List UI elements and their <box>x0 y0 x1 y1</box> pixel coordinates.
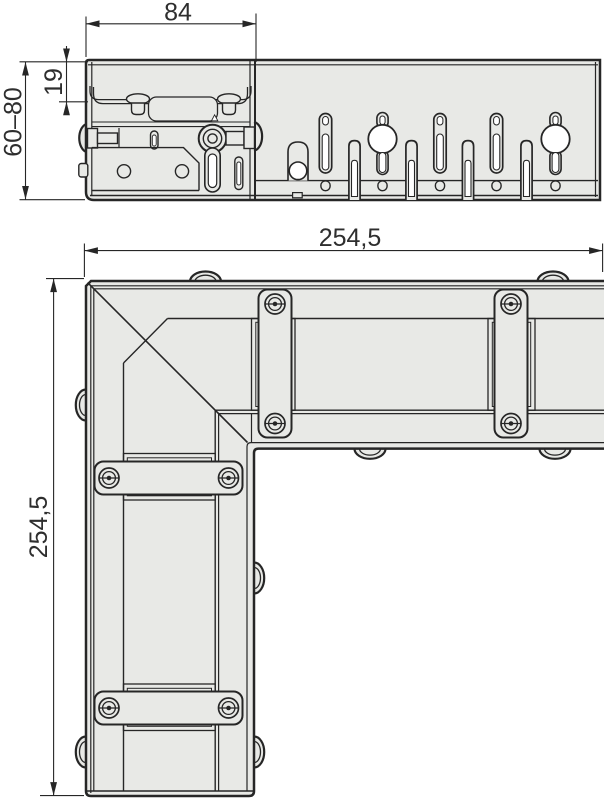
bolt-nut <box>223 103 236 115</box>
bolt-nut <box>132 103 145 115</box>
plan-view <box>76 272 604 797</box>
bracket-recess <box>149 97 218 121</box>
arrowhead <box>22 62 29 76</box>
dimension-plan-width: 254,5 <box>84 224 602 277</box>
dim-plan-height-label: 254,5 <box>25 496 53 559</box>
arrowhead <box>63 49 70 63</box>
dimension-plan-height: 254,5 <box>25 279 84 796</box>
arrowhead <box>84 247 98 254</box>
arrowhead <box>589 247 603 254</box>
arrowhead <box>22 186 29 200</box>
plate-hole <box>175 165 188 178</box>
hex-bolt-head <box>88 129 98 149</box>
bottom-open-slot <box>462 141 473 200</box>
arrowhead <box>86 20 100 27</box>
dimension-top-width: 84 <box>86 0 256 62</box>
hex-bolt-head <box>244 127 255 149</box>
bottom-open-slot <box>521 141 532 200</box>
dim-plan-width-label: 254,5 <box>319 224 382 252</box>
dim-height-range-label: 60–80 <box>0 87 28 157</box>
dimension-lip-height: 19 <box>20 46 89 115</box>
bolt-shaft <box>226 132 244 146</box>
bottom-open-slot <box>406 141 417 200</box>
technical-drawing-corner-channel: 84 19 60–80 254,5 <box>0 0 604 800</box>
wall-clip <box>79 164 88 178</box>
arrowhead <box>243 20 257 27</box>
plate-hole <box>117 165 130 178</box>
bottom-open-slot <box>349 141 360 200</box>
dim-top-width-label: 84 <box>164 0 192 27</box>
side-elevation-view <box>79 60 600 200</box>
dim-lip-height-label: 19 <box>40 68 68 96</box>
arrowhead <box>50 782 57 796</box>
arrowhead <box>63 102 70 116</box>
bolt-shaft <box>98 133 118 144</box>
arrowhead <box>50 279 57 293</box>
